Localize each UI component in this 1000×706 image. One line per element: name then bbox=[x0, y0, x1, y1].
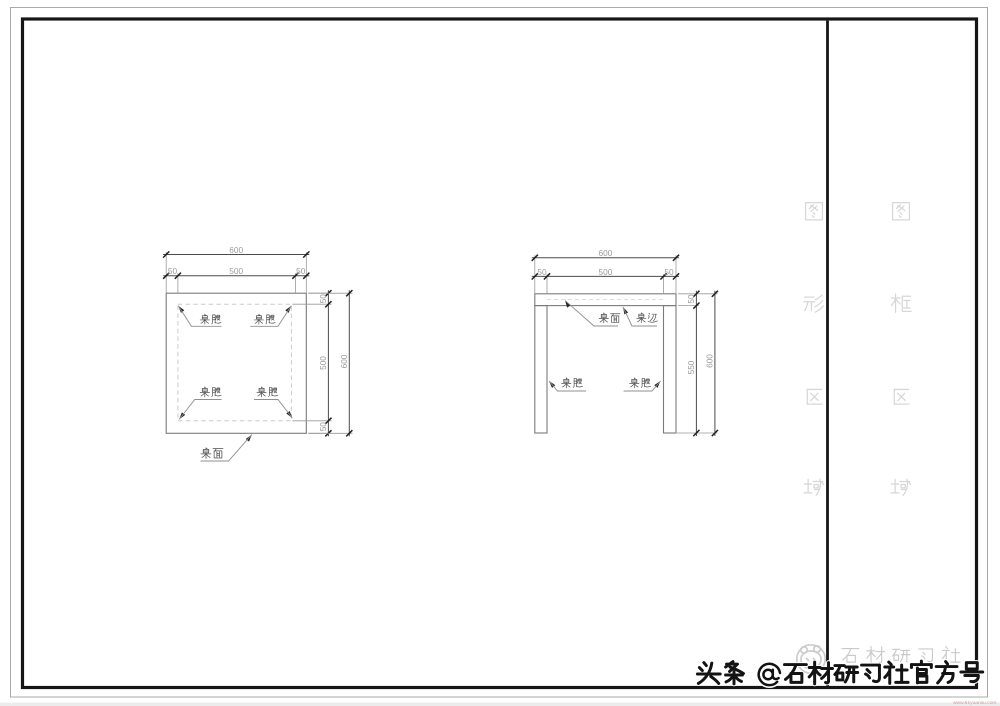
svg-text:550: 550 bbox=[686, 360, 696, 374]
svg-text:50: 50 bbox=[168, 266, 178, 276]
svg-text:600: 600 bbox=[598, 248, 612, 258]
svg-text:500: 500 bbox=[229, 266, 243, 276]
svg-text:500: 500 bbox=[598, 267, 612, 277]
svg-text:50: 50 bbox=[537, 267, 547, 277]
svg-text:500: 500 bbox=[318, 356, 328, 370]
svg-text:600: 600 bbox=[704, 354, 714, 368]
svg-text:50: 50 bbox=[686, 294, 696, 304]
svg-text:www.51yuansu.com: www.51yuansu.com bbox=[953, 700, 997, 706]
svg-text:50: 50 bbox=[296, 266, 306, 276]
svg-text:50: 50 bbox=[318, 294, 328, 304]
svg-text:600: 600 bbox=[339, 354, 349, 368]
svg-text:600: 600 bbox=[229, 245, 243, 255]
svg-text:50: 50 bbox=[664, 267, 674, 277]
svg-text:50: 50 bbox=[318, 422, 328, 432]
